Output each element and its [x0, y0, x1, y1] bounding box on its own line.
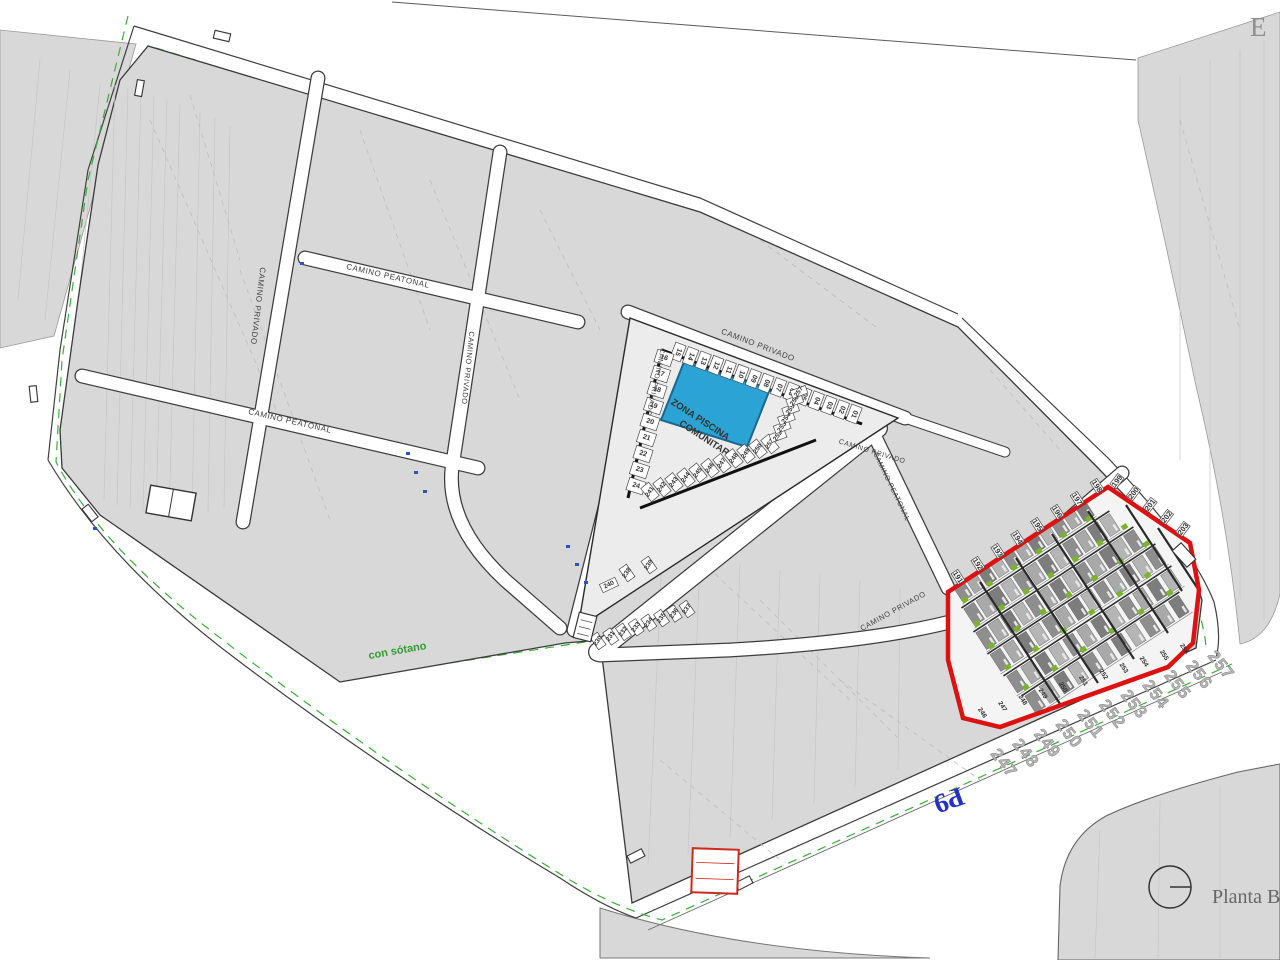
site-plan-canvas: ZONA PISCINA COMUNITARIA 151413121110090… [0, 0, 1280, 960]
plan-caption: Planta B [1212, 886, 1280, 908]
gate-symbol [29, 386, 38, 403]
title-fragment: E [1250, 12, 1267, 42]
pool-house-outline [691, 848, 739, 894]
